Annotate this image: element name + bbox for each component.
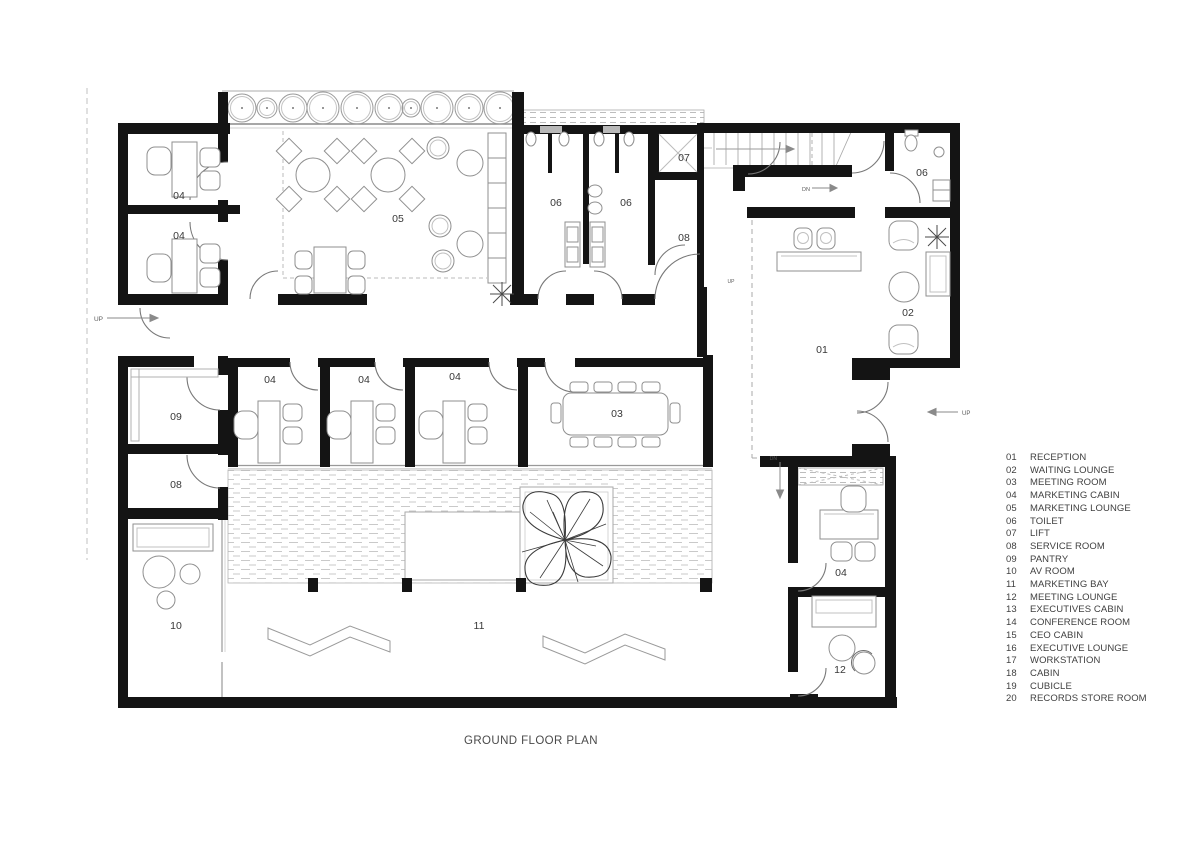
legend-room-number: 16 [1006,643,1030,656]
legend-room-number: 07 [1006,528,1030,541]
page-title: GROUND FLOOR PLAN [464,735,598,747]
tree-row [222,91,516,128]
legend-room-name: AV ROOM [1030,566,1200,579]
marketing-cabin-desk [234,401,302,463]
legend-room-number: 04 [1006,490,1030,503]
plant-icon [925,225,949,249]
legend-list: 01RECEPTION02WAITING LOUNGE03MEETING ROO… [1006,452,1200,706]
room-label-03: 03 [611,408,623,420]
dn-label-courtyard: DN [770,456,778,462]
marketing-cabin-desk [327,401,395,463]
room-label-08-b: 08 [170,479,182,491]
room-label-02: 02 [902,307,914,319]
legend-room-number: 02 [1006,465,1030,478]
legend-row: 10AV ROOM [1006,566,1200,579]
dn-arrow-stair [812,185,837,192]
legend-room-number: 18 [1006,668,1030,681]
legend-room-name: CEO CABIN [1030,630,1200,643]
legend-room-name: RECORDS STORE ROOM [1030,693,1200,706]
legend-row: 08SERVICE ROOM [1006,541,1200,554]
lounge-cabinet [488,133,506,283]
lounge-armchairs [427,137,483,272]
up-label-mid: UP [728,279,736,285]
dn-label-stair: DN [802,187,810,193]
legend-room-number: 03 [1006,477,1030,490]
legend-room-number: 01 [1006,452,1030,465]
legend-row: 20RECORDS STORE ROOM [1006,693,1200,706]
legend-room-number: 06 [1006,516,1030,529]
legend-room-name: MARKETING BAY [1030,579,1200,592]
legend-row: 05MARKETING LOUNGE [1006,503,1200,516]
legend-row: 06TOILET [1006,516,1200,529]
legend-row: 13EXECUTIVES CABIN [1006,604,1200,617]
room-label-07: 07 [678,152,690,164]
legend-room-name: CONFERENCE ROOM [1030,617,1200,630]
legend-room-number: 17 [1006,655,1030,668]
up-label-left: UP [94,316,103,323]
room-label-04-c: 04 [264,374,276,386]
room-label-04-d: 04 [358,374,370,386]
legend-room-name: RECEPTION [1030,452,1200,465]
legend-room-number: 10 [1006,566,1030,579]
legend-row: 09PANTRY [1006,554,1200,567]
legend-row: 18CABIN [1006,668,1200,681]
room-label-06-c: 06 [916,167,928,179]
legend-room-number: 19 [1006,681,1030,694]
legend-room-name: CUBICLE [1030,681,1200,694]
up-arrow-entry [928,409,958,416]
legend-room-name: MEETING ROOM [1030,477,1200,490]
legend-row: 19CUBICLE [1006,681,1200,694]
plant-icon [490,282,514,306]
legend-row: 16EXECUTIVE LOUNGE [1006,643,1200,656]
legend-room-number: 08 [1006,541,1030,554]
legend-room-name: LIFT [1030,528,1200,541]
legend-row: 14CONFERENCE ROOM [1006,617,1200,630]
marketing-cabin-desk [419,401,487,463]
plant-icons [490,225,949,306]
up-label-entry: UP [962,411,970,417]
legend-room-name: WAITING LOUNGE [1030,465,1200,478]
room-label-09: 09 [170,411,182,423]
legend-row: 11MARKETING BAY [1006,579,1200,592]
legend-row: 12MEETING LOUNGE [1006,592,1200,605]
room-label-04-b: 04 [173,230,185,242]
legend-room-number: 14 [1006,617,1030,630]
room-label-04-a: 04 [173,190,185,202]
floor-plan-drawing: 04 04 05 06 06 07 08 06 01 02 09 04 04 0… [0,0,1200,848]
room-label-06-a: 06 [550,197,562,209]
marketing-cabin-desk [147,142,220,197]
toilet-fixtures [905,130,950,201]
av-room-furniture [133,524,213,609]
reception-desk [777,228,861,271]
legend-row: 02WAITING LOUNGE [1006,465,1200,478]
legend-row: 01RECEPTION [1006,452,1200,465]
legend-room-name: TOILET [1030,516,1200,529]
room-label-05: 05 [392,213,404,225]
legend-room-name: SERVICE ROOM [1030,541,1200,554]
legend-room-name: EXECUTIVES CABIN [1030,604,1200,617]
courtyard [228,470,712,583]
lounge-work-table [295,247,365,294]
legend-room-number: 05 [1006,503,1030,516]
legend-room-number: 11 [1006,579,1030,592]
dn-arrow-courtyard [777,462,784,498]
legend-room-name: WORKSTATION [1030,655,1200,668]
legend-row: 17WORKSTATION [1006,655,1200,668]
legend-room-number: 20 [1006,693,1030,706]
legend-room-name: PANTRY [1030,554,1200,567]
lounge-table [351,138,424,211]
room-label-12: 12 [834,664,846,676]
legend-room-name: MARKETING LOUNGE [1030,503,1200,516]
zigzag-bench [268,626,665,664]
stair-flight-arrow [716,146,794,153]
legend-room-name: MARKETING CABIN [1030,490,1200,503]
room-label-08-a: 08 [678,232,690,244]
legend-room-name: EXECUTIVE LOUNGE [1030,643,1200,656]
marketing-cabin-desk [820,486,878,561]
pantry-counter [131,369,218,441]
legend-room-name: MEETING LOUNGE [1030,592,1200,605]
up-arrow-left [107,315,158,322]
room-label-04-e: 04 [449,371,461,383]
legend-row: 07LIFT [1006,528,1200,541]
room-label-11: 11 [474,620,485,632]
marketing-cabin-desk [147,239,220,293]
legend-room-number: 13 [1006,604,1030,617]
floor-plan-page: 04 04 05 06 06 07 08 06 01 02 09 04 04 0… [0,0,1200,848]
room-label-01: 01 [816,344,828,356]
legend-room-name: CABIN [1030,668,1200,681]
lounge-table [276,138,349,211]
room-label-06-b: 06 [620,197,632,209]
meeting-lounge-furniture [812,596,876,674]
legend-row: 04MARKETING CABIN [1006,490,1200,503]
legend-room-number: 12 [1006,592,1030,605]
legend-room-number: 15 [1006,630,1030,643]
legend-room-number: 09 [1006,554,1030,567]
room-label-04-f: 04 [835,567,847,579]
legend-row: 03MEETING ROOM [1006,477,1200,490]
legend-row: 15CEO CABIN [1006,630,1200,643]
room-label-10: 10 [170,620,182,632]
